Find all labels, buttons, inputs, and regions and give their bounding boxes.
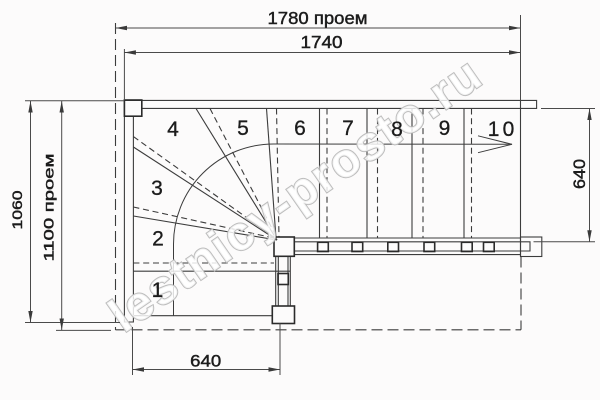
svg-text:9: 9 <box>439 117 451 140</box>
svg-text:1060: 1060 <box>9 190 25 229</box>
svg-text:8: 8 <box>391 118 403 141</box>
svg-text:7: 7 <box>342 117 354 140</box>
svg-text:1: 1 <box>152 279 164 302</box>
svg-text:1100 проем: 1100 проем <box>40 154 56 262</box>
svg-text:640: 640 <box>571 159 589 189</box>
svg-text:1740: 1740 <box>301 32 343 52</box>
svg-text:2: 2 <box>152 227 164 250</box>
svg-text:6: 6 <box>294 117 306 140</box>
svg-text:4: 4 <box>167 118 179 141</box>
svg-text:1780 проем: 1780 проем <box>268 8 368 28</box>
svg-text:3: 3 <box>151 177 163 200</box>
svg-text:640: 640 <box>190 352 221 370</box>
svg-text:5: 5 <box>237 117 249 140</box>
